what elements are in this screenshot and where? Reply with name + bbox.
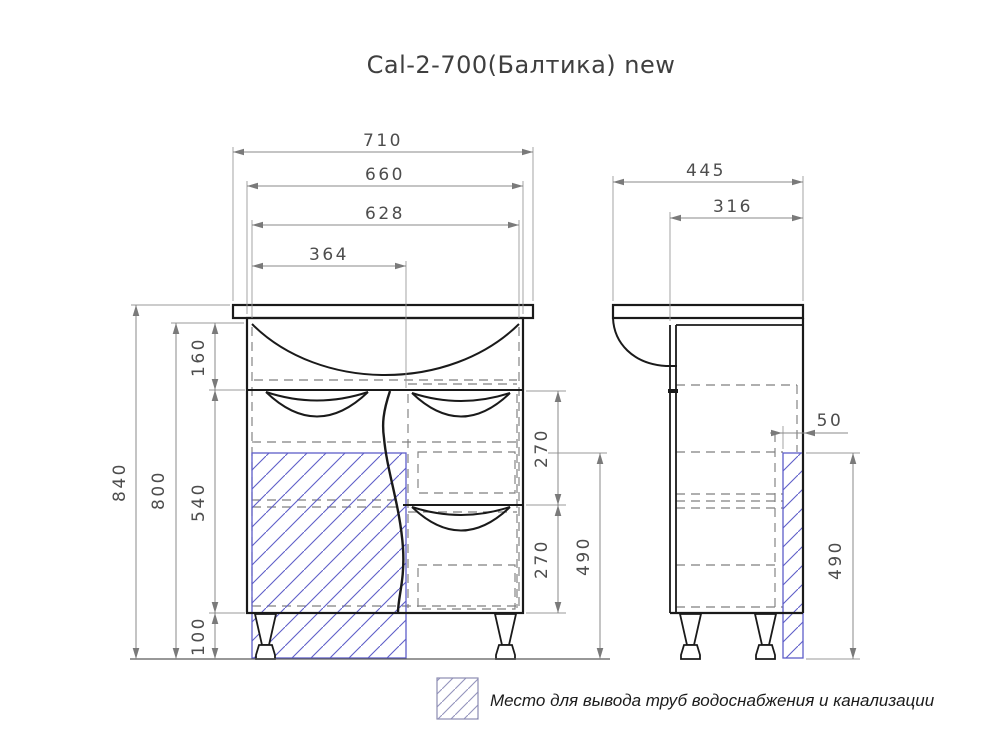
leg	[680, 614, 701, 645]
legend-hatch-swatch	[437, 678, 478, 719]
dim-cabinet-width-label: 660	[365, 165, 405, 185]
dim-drawer-top-label: 270	[532, 428, 552, 468]
dim-body-depth-label: 316	[713, 197, 753, 217]
dim-total-height-label: 840	[110, 462, 130, 502]
dim-body-height-label: 800	[149, 470, 169, 510]
side-cabinet-outline	[613, 305, 803, 613]
panel-joint	[668, 389, 678, 393]
pipe-zone-side-hatch	[783, 453, 803, 658]
dim-pipe-zone-height-front-label: 490	[574, 536, 594, 576]
leg-foot	[496, 645, 515, 659]
dim-legs-height-label: 100	[189, 616, 209, 656]
dim-middle-section-label: 540	[189, 482, 209, 522]
side-hidden-lines	[676, 385, 797, 610]
dim-top-section-label: 160	[189, 337, 209, 377]
leg-foot	[756, 645, 775, 659]
drawing-svg: 710 660 628 364 840 800 160 540 100 270 …	[0, 0, 1000, 750]
drawer-box-bottom-hidden	[418, 565, 515, 609]
legend: Место для вывода труб водоснабжения и ка…	[437, 678, 935, 719]
leg-foot	[681, 645, 700, 659]
dim-overall-depth-label: 445	[686, 161, 726, 181]
dim-pipe-zone-depth-label: 50	[817, 411, 844, 431]
sink-bulge-curve	[613, 318, 677, 366]
dim-overall-width-label: 710	[363, 131, 403, 151]
drawer-bottom-handle	[412, 507, 510, 531]
leg-foot	[256, 645, 275, 659]
sink-countertop-side	[613, 305, 803, 318]
leg	[755, 614, 776, 645]
dim-pipe-zone-width-label: 364	[309, 245, 349, 265]
front-view	[233, 305, 533, 659]
dim-drawer-bottom-label: 270	[532, 539, 552, 579]
sink-bowl-curve	[252, 324, 519, 375]
side-legs	[680, 614, 776, 659]
side-dimensions: 445 316 50 490	[613, 161, 860, 659]
door-handle	[266, 392, 368, 417]
side-view	[613, 305, 803, 659]
drawer-box-top-hidden	[418, 452, 515, 493]
sink-countertop	[233, 305, 533, 318]
technical-drawing: Cal-2-700(Балтика) new	[0, 0, 1000, 750]
pipe-zone-front-hatch	[252, 453, 406, 658]
dim-inner-width-label: 628	[365, 204, 405, 224]
dim-pipe-zone-height-side-label: 490	[826, 540, 846, 580]
legend-label: Место для вывода труб водоснабжения и ка…	[490, 691, 935, 710]
drawer-top-handle	[412, 393, 510, 417]
leg	[495, 614, 516, 645]
